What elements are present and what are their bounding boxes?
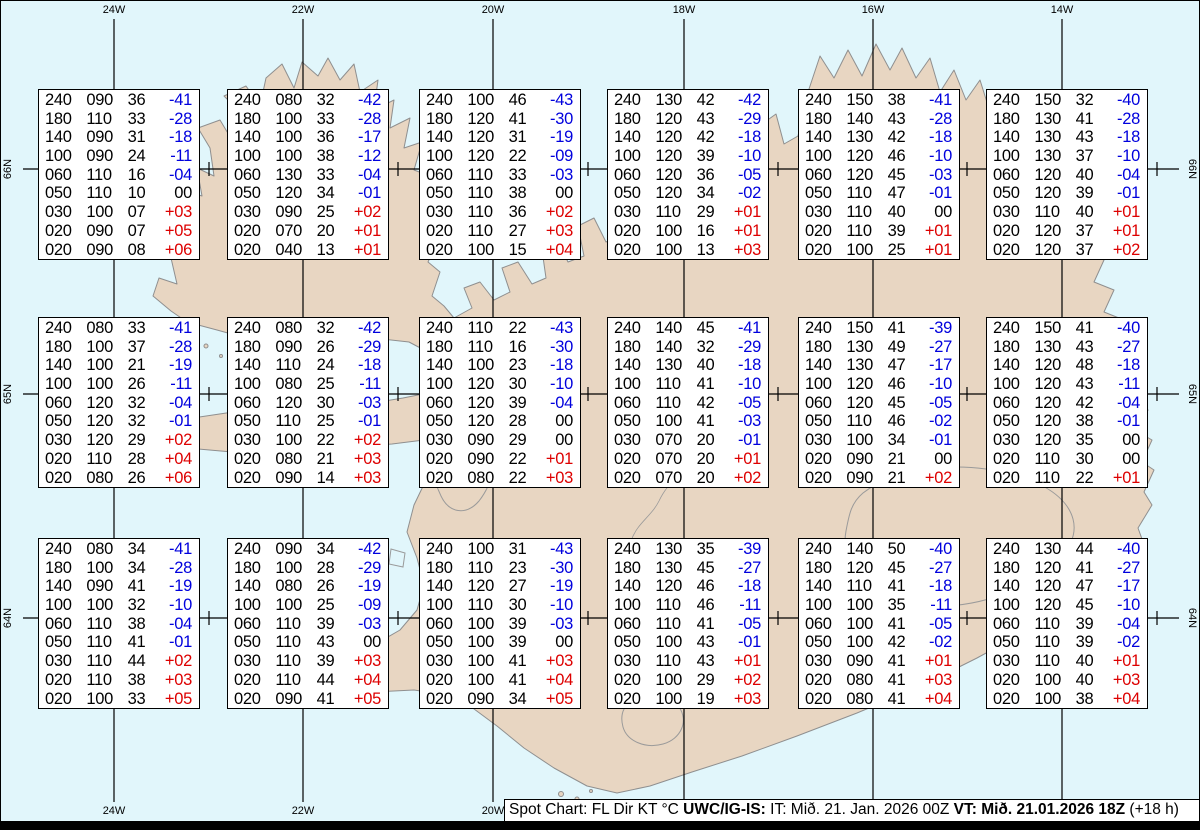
spot-cell-fl: 060: [993, 166, 1024, 185]
spot-cell-kt: 49: [888, 338, 910, 357]
spot-cell-dir: 120: [467, 375, 498, 394]
spot-cell-temp: +06: [160, 469, 192, 488]
spot-cell-dir: 100: [467, 91, 498, 110]
spot-cell-dir: 120: [467, 110, 498, 129]
spot-cell-kt: 22: [509, 469, 531, 488]
spot-cell-fl: 240: [234, 91, 265, 110]
spot-cell-kt: 22: [509, 319, 531, 338]
spot-cell-dir: 100: [467, 652, 498, 671]
spot-cell-dir: 140: [655, 338, 686, 357]
spot-row: 05012034-01: [234, 184, 381, 203]
spot-row: 02008041+04: [805, 690, 952, 709]
spot-row: 24010031-43: [426, 540, 573, 559]
spot-cell-kt: 26: [128, 469, 150, 488]
spot-cell-dir: 120: [846, 166, 877, 185]
spot-cell-fl: 100: [614, 596, 645, 615]
spot-cell-fl: 060: [805, 394, 836, 413]
spot-box-r3c1: 24008034-4118010034-2814009041-191001003…: [38, 538, 200, 709]
spot-cell-fl: 180: [614, 338, 645, 357]
spot-cell-fl: 100: [614, 147, 645, 166]
spot-cell-kt: 07: [128, 222, 150, 241]
spot-cell-dir: 120: [1034, 431, 1065, 450]
spot-cell-kt: 42: [697, 128, 719, 147]
spot-cell-temp: -41: [729, 319, 761, 338]
spot-cell-fl: 140: [993, 577, 1024, 596]
spot-cell-dir: 110: [86, 652, 117, 671]
lon-label-top-18w: 18W: [664, 4, 704, 16]
spot-row: 03010022+02: [234, 431, 381, 450]
spot-cell-fl: 100: [45, 596, 76, 615]
spot-row: 14010021-19: [45, 356, 192, 375]
spot-cell-fl: 030: [993, 431, 1024, 450]
spot-row: 10012046-10: [805, 147, 952, 166]
spot-box-r3c2: 24009034-4218010028-2914008026-191001002…: [227, 538, 389, 709]
bottom-frame-strip: [1, 821, 1200, 830]
spot-cell-fl: 020: [993, 690, 1024, 709]
spot-cell-temp: -18: [541, 356, 573, 375]
spot-cell-kt: 41: [888, 577, 910, 596]
spot-cell-kt: 25: [317, 412, 339, 431]
spot-row: 18014043-28: [805, 110, 952, 129]
spot-cell-kt: 24: [317, 356, 339, 375]
spot-cell-fl: 100: [426, 375, 457, 394]
spot-cell-dir: 100: [86, 203, 117, 222]
spot-cell-kt: 38: [128, 671, 150, 690]
spot-cell-dir: 100: [846, 241, 877, 260]
spot-cell-temp: -10: [729, 147, 761, 166]
spot-cell-kt: 23: [509, 559, 531, 578]
spot-cell-temp: +01: [729, 222, 761, 241]
spot-cell-kt: 46: [888, 375, 910, 394]
spot-cell-fl: 240: [993, 319, 1024, 338]
spot-cell-fl: 100: [805, 147, 836, 166]
spot-cell-temp: -01: [349, 184, 381, 203]
spot-cell-temp: -02: [1108, 633, 1140, 652]
spot-cell-fl: 050: [993, 633, 1024, 652]
spot-cell-temp: -18: [729, 128, 761, 147]
spot-row: 18012041-27: [993, 559, 1140, 578]
spot-cell-dir: 100: [655, 690, 686, 709]
spot-cell-temp: -19: [541, 577, 573, 596]
spot-cell-dir: 100: [467, 241, 498, 260]
spot-cell-fl: 020: [426, 671, 457, 690]
spot-row: 02009041+05: [234, 690, 381, 709]
spot-cell-temp: -10: [1108, 596, 1140, 615]
spot-cell-fl: 020: [993, 222, 1024, 241]
spot-box-r3c5: 24014050-4018012045-2714011041-181001003…: [798, 538, 960, 709]
spot-cell-temp: -27: [920, 338, 952, 357]
spot-cell-fl: 020: [993, 671, 1024, 690]
spot-box-r1c3: 24010046-4318012041-3014012031-191001202…: [419, 89, 581, 260]
spot-cell-dir: 100: [275, 147, 306, 166]
spot-cell-kt: 29: [128, 431, 150, 450]
spot-row: 10010032-10: [45, 596, 192, 615]
spot-cell-fl: 030: [45, 203, 76, 222]
spot-cell-temp: -30: [541, 110, 573, 129]
spot-cell-fl: 060: [426, 394, 457, 413]
spot-cell-temp: -10: [541, 375, 573, 394]
spot-cell-temp: -28: [920, 110, 952, 129]
spot-cell-fl: 060: [426, 166, 457, 185]
spot-cell-fl: 240: [614, 91, 645, 110]
spot-cell-temp: -19: [349, 577, 381, 596]
spot-cell-temp: -42: [349, 540, 381, 559]
spot-cell-fl: 020: [426, 241, 457, 260]
spot-row: 06010041-05: [805, 615, 952, 634]
spot-cell-fl: 020: [614, 690, 645, 709]
spot-cell-fl: 100: [993, 596, 1024, 615]
spot-cell-kt: 43: [1076, 338, 1098, 357]
spot-cell-fl: 020: [614, 241, 645, 260]
spot-cell-kt: 41: [509, 652, 531, 671]
spot-cell-temp: 00: [160, 184, 192, 203]
spot-row: 10012045-10: [993, 596, 1140, 615]
spot-cell-fl: 020: [614, 469, 645, 488]
spot-cell-kt: 32: [128, 394, 150, 413]
spot-cell-fl: 240: [45, 91, 76, 110]
spot-cell-fl: 060: [45, 394, 76, 413]
spot-cell-temp: -43: [541, 540, 573, 559]
spot-cell-dir: 110: [467, 166, 498, 185]
spot-cell-dir: 120: [467, 128, 498, 147]
spot-cell-kt: 36: [509, 203, 531, 222]
spot-cell-dir: 090: [467, 431, 498, 450]
spot-cell-fl: 240: [993, 540, 1024, 559]
spot-cell-kt: 46: [697, 596, 719, 615]
spot-row: 0301203500: [993, 431, 1140, 450]
spot-cell-fl: 060: [805, 166, 836, 185]
spot-cell-kt: 38: [888, 91, 910, 110]
spot-row: 14009031-18: [45, 128, 192, 147]
spot-cell-kt: 35: [1076, 431, 1098, 450]
spot-cell-temp: +06: [160, 241, 192, 260]
spot-cell-fl: 180: [234, 559, 265, 578]
spot-box-r1c1: 24009036-4118011033-2814009031-181000902…: [38, 89, 200, 260]
spot-row: 06012042-04: [993, 394, 1140, 413]
spot-cell-temp: +03: [729, 690, 761, 709]
spot-row: 18012043-29: [614, 110, 761, 129]
spot-cell-temp: +05: [160, 690, 192, 709]
spot-row: 10012022-09: [426, 147, 573, 166]
spot-cell-fl: 180: [993, 110, 1024, 129]
spot-cell-fl: 030: [614, 203, 645, 222]
spot-cell-kt: 33: [128, 690, 150, 709]
spot-row: 06011039-03: [234, 615, 381, 634]
spot-cell-fl: 140: [45, 356, 76, 375]
spot-cell-dir: 070: [655, 431, 686, 450]
spot-cell-fl: 180: [45, 110, 76, 129]
spot-cell-kt: 41: [317, 690, 339, 709]
spot-cell-fl: 020: [805, 450, 836, 469]
spot-cell-fl: 020: [45, 690, 76, 709]
spot-row: 10008025-11: [234, 375, 381, 394]
spot-cell-fl: 020: [426, 450, 457, 469]
spot-cell-fl: 180: [234, 110, 265, 129]
spot-cell-kt: 41: [509, 110, 531, 129]
spot-cell-kt: 30: [509, 596, 531, 615]
spot-cell-kt: 34: [317, 184, 339, 203]
spot-row: 24008032-42: [234, 91, 381, 110]
spot-row: 06011038-04: [45, 615, 192, 634]
spot-row: 14012027-19: [426, 577, 573, 596]
lon-label-top-22w: 22W: [283, 4, 323, 16]
spot-cell-kt: 32: [317, 319, 339, 338]
spot-cell-fl: 140: [45, 577, 76, 596]
spot-cell-fl: 060: [614, 394, 645, 413]
spot-cell-kt: 32: [1076, 91, 1098, 110]
spot-cell-kt: 26: [317, 577, 339, 596]
spot-cell-temp: +03: [349, 469, 381, 488]
spot-cell-dir: 100: [1034, 690, 1065, 709]
spot-row: 24013042-42: [614, 91, 761, 110]
spot-cell-dir: 110: [846, 184, 877, 203]
spot-cell-kt: 20: [697, 450, 719, 469]
spot-cell-dir: 090: [275, 690, 306, 709]
spot-cell-fl: 020: [426, 690, 457, 709]
spot-cell-kt: 32: [128, 596, 150, 615]
spot-row: 14011041-18: [805, 577, 952, 596]
spot-cell-kt: 32: [128, 412, 150, 431]
spot-cell-dir: 070: [655, 450, 686, 469]
spot-cell-temp: +05: [349, 690, 381, 709]
spot-cell-dir: 100: [86, 559, 117, 578]
spot-cell-fl: 240: [234, 540, 265, 559]
spot-cell-fl: 050: [993, 412, 1024, 431]
spot-cell-dir: 130: [1034, 110, 1065, 129]
spot-row: 02011044+04: [234, 671, 381, 690]
spot-cell-temp: 00: [920, 450, 952, 469]
spot-row: 24015041-39: [805, 319, 952, 338]
spot-cell-dir: 120: [1034, 184, 1065, 203]
spot-cell-kt: 44: [317, 671, 339, 690]
spot-cell-temp: -10: [920, 147, 952, 166]
spot-cell-temp: -30: [541, 338, 573, 357]
spot-cell-temp: -41: [160, 91, 192, 110]
spot-cell-dir: 100: [467, 615, 498, 634]
spot-cell-dir: 080: [275, 91, 306, 110]
spot-cell-kt: 34: [697, 184, 719, 203]
spot-cell-temp: -18: [729, 356, 761, 375]
spot-cell-temp: -41: [160, 319, 192, 338]
spot-cell-kt: 45: [697, 559, 719, 578]
spot-row: 03009041+01: [805, 652, 952, 671]
spot-cell-dir: 110: [275, 671, 306, 690]
spot-cell-dir: 110: [846, 222, 877, 241]
spot-cell-fl: 140: [426, 356, 457, 375]
spot-cell-temp: -01: [160, 633, 192, 652]
spot-cell-kt: 47: [888, 356, 910, 375]
spot-row: 18011023-30: [426, 559, 573, 578]
spot-cell-temp: +01: [920, 222, 952, 241]
spot-cell-fl: 020: [614, 450, 645, 469]
spot-cell-kt: 30: [1076, 450, 1098, 469]
spot-row: 02009021+02: [805, 469, 952, 488]
spot-cell-temp: -28: [1108, 110, 1140, 129]
spot-row: 02010029+02: [614, 671, 761, 690]
status-lead-time: (+18 h): [1125, 801, 1179, 818]
spot-row: 06012040-04: [993, 166, 1140, 185]
spot-cell-kt: 41: [1076, 559, 1098, 578]
spot-row: 0501101000: [45, 184, 192, 203]
spot-row: 02008041+03: [805, 671, 952, 690]
spot-cell-kt: 41: [128, 577, 150, 596]
spot-row: 02008021+03: [234, 450, 381, 469]
spot-cell-temp: -29: [349, 559, 381, 578]
spot-row: 18010028-29: [234, 559, 381, 578]
spot-cell-temp: -11: [349, 375, 381, 394]
spot-cell-temp: -01: [920, 184, 952, 203]
spot-row: 05011025-01: [234, 412, 381, 431]
spot-row: 24010046-43: [426, 91, 573, 110]
spot-cell-temp: -28: [160, 338, 192, 357]
spot-cell-dir: 110: [275, 652, 306, 671]
spot-box-r2c5: 24015041-3918013049-2714013047-171001204…: [798, 317, 960, 488]
spot-cell-fl: 240: [45, 319, 76, 338]
spot-cell-fl: 020: [993, 469, 1024, 488]
spot-cell-temp: -30: [541, 559, 573, 578]
spot-cell-dir: 080: [275, 450, 306, 469]
spot-box-r1c2: 24008032-4218010033-2814010036-171001003…: [227, 89, 389, 260]
spot-cell-temp: -42: [349, 91, 381, 110]
spot-cell-temp: +03: [920, 671, 952, 690]
spot-cell-temp: -27: [729, 559, 761, 578]
spot-cell-kt: 25: [888, 241, 910, 260]
spot-cell-kt: 39: [1076, 633, 1098, 652]
spot-cell-kt: 42: [1076, 394, 1098, 413]
spot-cell-temp: -18: [920, 128, 952, 147]
spot-row: 18013049-27: [805, 338, 952, 357]
spot-cell-temp: -03: [541, 166, 573, 185]
spot-row: 14011024-18: [234, 356, 381, 375]
spot-cell-temp: +01: [729, 652, 761, 671]
spot-cell-temp: +01: [1108, 203, 1140, 222]
status-bar: Spot Chart: FL Dir KT °C UWC/IG-IS: IT: …: [504, 799, 1200, 822]
spot-cell-kt: 27: [509, 222, 531, 241]
spot-cell-dir: 110: [1034, 615, 1065, 634]
spot-row: 18011033-28: [45, 110, 192, 129]
spot-row: 06011039-04: [993, 615, 1140, 634]
spot-cell-kt: 33: [317, 110, 339, 129]
spot-cell-fl: 140: [993, 356, 1024, 375]
spot-row: 24009036-41: [45, 91, 192, 110]
spot-cell-temp: -29: [729, 338, 761, 357]
spot-cell-dir: 120: [86, 394, 117, 413]
spot-cell-dir: 140: [846, 540, 877, 559]
spot-cell-fl: 030: [234, 203, 265, 222]
spot-cell-kt: 29: [697, 203, 719, 222]
spot-cell-temp: +02: [541, 203, 573, 222]
spot-row: 06012032-04: [45, 394, 192, 413]
spot-cell-fl: 030: [426, 431, 457, 450]
spot-cell-temp: -17: [920, 356, 952, 375]
spot-row: 02011038+03: [45, 671, 192, 690]
spot-cell-dir: 100: [467, 356, 498, 375]
spot-row: 06011042-05: [614, 394, 761, 413]
spot-cell-kt: 39: [509, 394, 531, 413]
spot-cell-kt: 16: [697, 222, 719, 241]
spot-cell-dir: 130: [1034, 128, 1065, 147]
spot-cell-dir: 090: [846, 652, 877, 671]
spot-cell-dir: 090: [86, 577, 117, 596]
spot-cell-fl: 020: [805, 671, 836, 690]
spot-cell-fl: 020: [234, 671, 265, 690]
spot-row: 10010025-09: [234, 596, 381, 615]
spot-row: 02009008+06: [45, 241, 192, 260]
spot-cell-fl: 020: [45, 450, 76, 469]
spot-cell-dir: 120: [1034, 577, 1065, 596]
spot-cell-temp: +01: [541, 450, 573, 469]
spot-cell-kt: 28: [509, 412, 531, 431]
spot-cell-fl: 050: [234, 184, 265, 203]
spot-cell-kt: 46: [888, 147, 910, 166]
spot-cell-kt: 08: [128, 241, 150, 260]
spot-cell-dir: 110: [86, 615, 117, 634]
spot-row: 18012045-27: [805, 559, 952, 578]
spot-cell-temp: -01: [729, 633, 761, 652]
spot-row: 18011016-30: [426, 338, 573, 357]
spot-row: 10010035-11: [805, 596, 952, 615]
spot-row: 02009022+01: [426, 450, 573, 469]
spot-cell-fl: 100: [426, 596, 457, 615]
spot-cell-dir: 110: [467, 319, 498, 338]
spot-row: 02007020+01: [614, 450, 761, 469]
spot-cell-temp: -18: [1108, 356, 1140, 375]
spot-cell-dir: 110: [1034, 633, 1065, 652]
spot-cell-temp: -27: [920, 559, 952, 578]
spot-cell-kt: 37: [1076, 222, 1098, 241]
spot-cell-dir: 110: [86, 184, 117, 203]
spot-cell-dir: 090: [275, 540, 306, 559]
spot-box-r1c6: 24015032-4018013041-2814013043-181001303…: [986, 89, 1148, 260]
spot-cell-kt: 43: [1076, 375, 1098, 394]
spot-cell-temp: 00: [920, 203, 952, 222]
spot-cell-fl: 020: [993, 450, 1024, 469]
spot-cell-kt: 45: [1076, 596, 1098, 615]
spot-row: 02007020+02: [614, 469, 761, 488]
spot-cell-fl: 100: [234, 375, 265, 394]
spot-row: 03011040+01: [993, 652, 1140, 671]
spot-cell-temp: -18: [729, 577, 761, 596]
spot-cell-fl: 140: [234, 577, 265, 596]
spot-cell-dir: 110: [467, 596, 498, 615]
spot-row: 03010041+03: [426, 652, 573, 671]
spot-cell-dir: 120: [655, 128, 686, 147]
spot-cell-temp: +04: [160, 450, 192, 469]
spot-cell-temp: +04: [349, 671, 381, 690]
spot-cell-dir: 120: [1034, 394, 1065, 413]
spot-cell-fl: 240: [805, 319, 836, 338]
spot-cell-dir: 100: [846, 633, 877, 652]
spot-cell-dir: 130: [655, 356, 686, 375]
spot-cell-temp: -04: [1108, 394, 1140, 413]
spot-row: 18013041-28: [993, 110, 1140, 129]
spot-cell-kt: 27: [509, 577, 531, 596]
spot-row: 03012029+02: [45, 431, 192, 450]
spot-cell-kt: 28: [317, 559, 339, 578]
spot-cell-temp: +03: [160, 203, 192, 222]
spot-cell-fl: 050: [426, 633, 457, 652]
spot-cell-temp: +02: [160, 652, 192, 671]
spot-cell-fl: 060: [234, 166, 265, 185]
lat-label-right-64n: 64N: [1186, 603, 1198, 633]
spot-cell-fl: 020: [234, 241, 265, 260]
spot-cell-temp: -11: [920, 596, 952, 615]
spot-cell-fl: 100: [805, 375, 836, 394]
spot-cell-kt: 38: [509, 184, 531, 203]
spot-row: 05010042-02: [805, 633, 952, 652]
spot-cell-fl: 180: [805, 338, 836, 357]
spot-row: 05010043-01: [614, 633, 761, 652]
